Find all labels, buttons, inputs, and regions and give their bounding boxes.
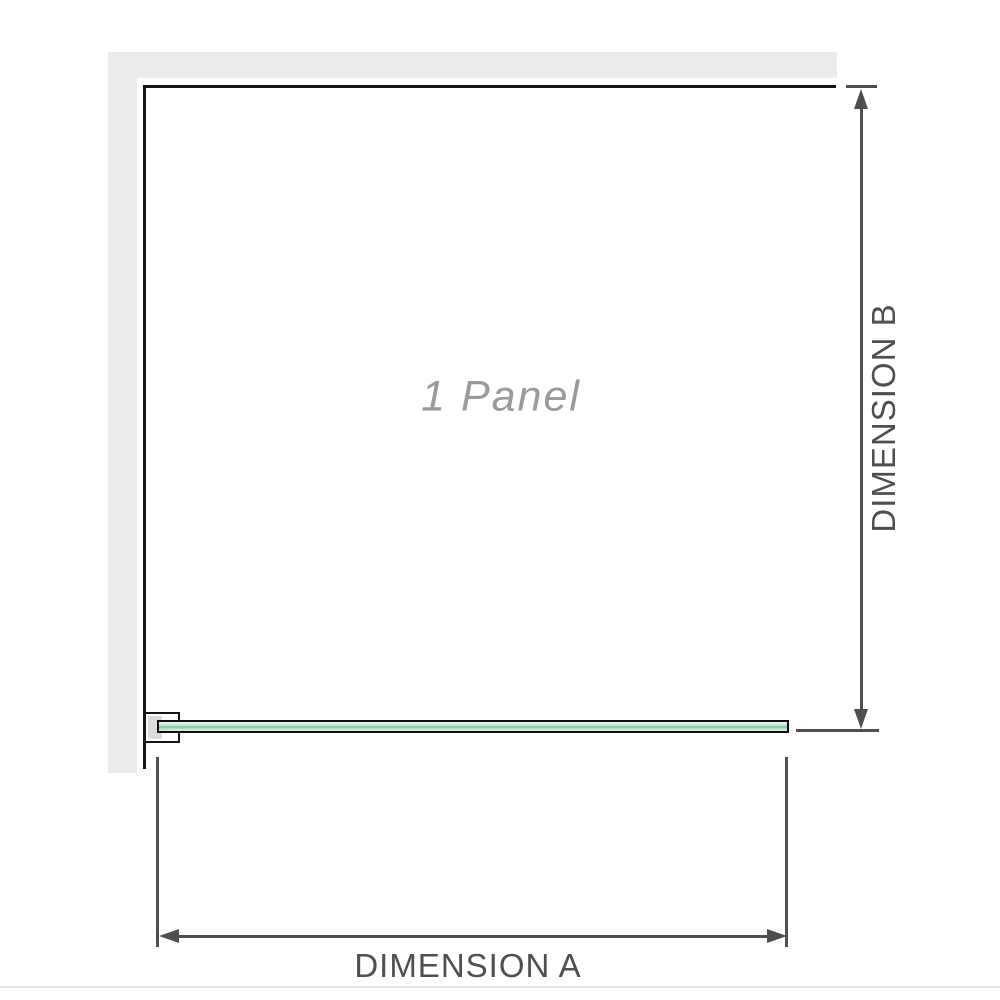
glass-panel (157, 720, 789, 733)
wall-top (108, 52, 837, 78)
dim-b-tick-top (846, 85, 877, 88)
dim-a-line (166, 935, 780, 938)
enclosure-left-line (143, 85, 146, 769)
wall-left (108, 78, 137, 773)
dim-a-extension-right (785, 757, 788, 947)
dim-b-label: DIMENSION B (865, 303, 903, 532)
dim-a-extension-left (156, 757, 159, 947)
arrow-left-icon (159, 929, 179, 943)
arrow-right-icon (767, 929, 787, 943)
dim-b-line (860, 100, 863, 715)
enclosure-top-line (143, 85, 836, 88)
arrow-up-icon (854, 89, 868, 109)
panel-label: 1 Panel (421, 373, 581, 422)
bottom-divider (0, 986, 1000, 988)
dim-b-tick-bottom (796, 729, 879, 732)
dim-a-label: DIMENSION A (354, 947, 581, 985)
arrow-down-icon (854, 709, 868, 729)
panel-diagram: 1 Panel DIMENSION B DIMENSION A (0, 0, 1000, 1000)
